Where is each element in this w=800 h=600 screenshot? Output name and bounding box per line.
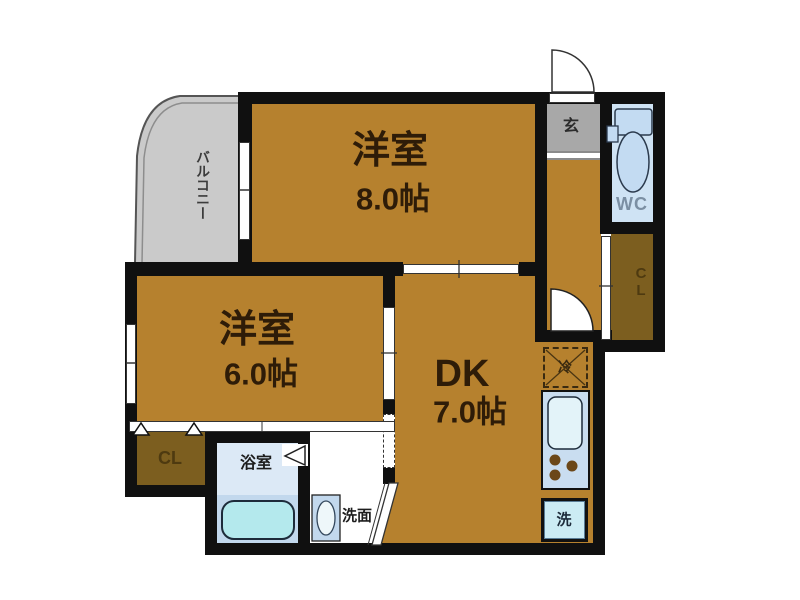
wc-label: WC xyxy=(616,195,648,213)
stove-burner-3 xyxy=(550,470,561,481)
toilet-tank xyxy=(615,109,652,135)
refrigerator-label: 冷 xyxy=(558,360,572,374)
washroom-label: 洗面 xyxy=(342,509,372,524)
stove-burner-2 xyxy=(567,461,578,472)
floor-plan: 洋室 8.0帖 洋室 6.0帖 DK 7.0帖 バルコニー 玄 WC CL CL… xyxy=(0,0,800,600)
balcony-label: バルコニー xyxy=(196,150,210,220)
washstand-basin xyxy=(317,501,335,535)
dk-name-label: DK xyxy=(435,355,490,393)
fixtures-layer xyxy=(0,0,800,600)
bathroom-label: 浴室 xyxy=(240,456,272,472)
closet-left-label: CL xyxy=(158,449,182,467)
entrance-label: 玄 xyxy=(563,119,579,135)
room8-name-label: 洋室 xyxy=(352,132,428,170)
room8-size-label: 8.0帖 xyxy=(356,184,430,215)
room6-name-label: 洋室 xyxy=(219,311,295,349)
entrance-door-swing xyxy=(552,50,594,92)
dk-size-label: 7.0帖 xyxy=(433,397,507,428)
room6-size-label: 6.0帖 xyxy=(224,359,298,390)
laundry-label: 洗 xyxy=(556,513,571,528)
closet-left-door-fold-2 xyxy=(186,423,202,435)
closet-right-label: CL xyxy=(634,265,649,299)
kitchen-sink xyxy=(548,397,582,449)
toilet-bowl xyxy=(617,132,649,192)
stove-burner-1 xyxy=(550,455,561,466)
hall-door-swing xyxy=(551,289,593,331)
closet-left-door-fold-1 xyxy=(133,423,149,435)
bathtub xyxy=(222,501,294,539)
toilet-flush xyxy=(607,126,618,142)
diagonal-door xyxy=(372,483,398,545)
